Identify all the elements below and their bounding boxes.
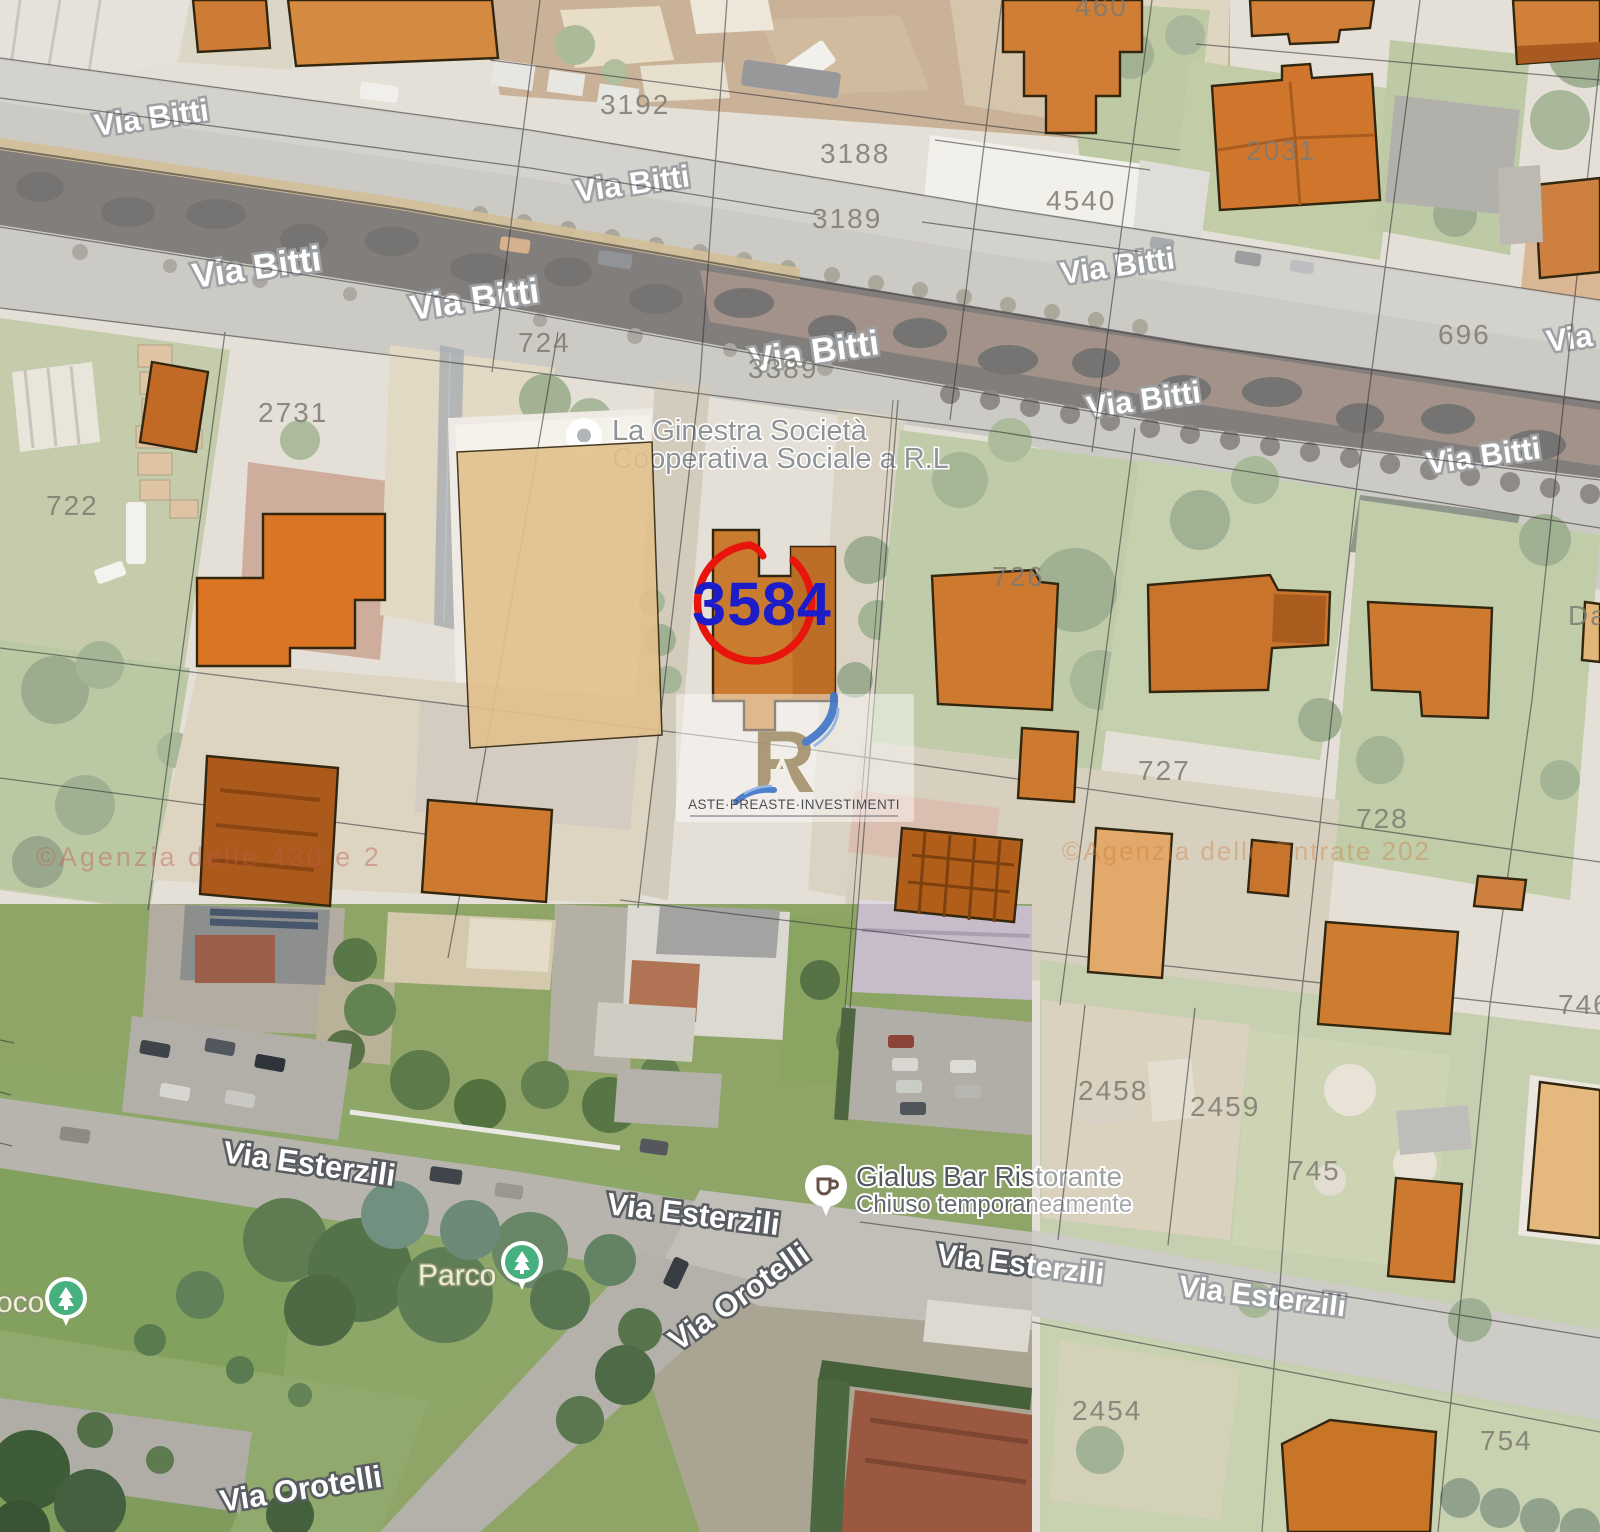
svg-text:Parco: Parco bbox=[418, 1259, 496, 1292]
svg-text:727: 727 bbox=[1138, 755, 1191, 786]
svg-text:©Agenzia delle 430 e 2: ©Agenzia delle 430 e 2 bbox=[36, 842, 382, 872]
svg-text:©Agenzia delle Entrate 202: ©Agenzia delle Entrate 202 bbox=[1062, 836, 1431, 866]
svg-text:2454: 2454 bbox=[1072, 1395, 1142, 1426]
svg-text:2731: 2731 bbox=[258, 397, 328, 428]
svg-text:754: 754 bbox=[1480, 1425, 1533, 1456]
svg-text:745: 745 bbox=[1288, 1155, 1341, 1186]
svg-text:3189: 3189 bbox=[812, 203, 882, 234]
svg-text:3584: 3584 bbox=[692, 570, 832, 638]
svg-text:3192: 3192 bbox=[600, 89, 670, 120]
svg-text:4540: 4540 bbox=[1046, 185, 1116, 216]
svg-text:2031: 2031 bbox=[1246, 135, 1316, 166]
svg-text:724: 724 bbox=[518, 327, 571, 358]
svg-text:696: 696 bbox=[1438, 319, 1491, 350]
svg-text:722: 722 bbox=[46, 490, 99, 521]
svg-text:3188: 3188 bbox=[820, 138, 890, 169]
svg-text:746: 746 bbox=[1558, 989, 1600, 1020]
svg-text:728: 728 bbox=[1356, 803, 1409, 834]
svg-text:oco: oco bbox=[0, 1286, 44, 1319]
svg-text:3389: 3389 bbox=[748, 353, 818, 384]
svg-text:2459: 2459 bbox=[1190, 1091, 1260, 1122]
svg-text:ASTE·PREASTE·INVESTIMENTI: ASTE·PREASTE·INVESTIMENTI bbox=[688, 797, 900, 812]
svg-text:460: 460 bbox=[1075, 0, 1128, 22]
svg-text:2458: 2458 bbox=[1078, 1075, 1148, 1106]
svg-text:726: 726 bbox=[992, 561, 1045, 592]
svg-text:Da: Da bbox=[1568, 600, 1600, 631]
